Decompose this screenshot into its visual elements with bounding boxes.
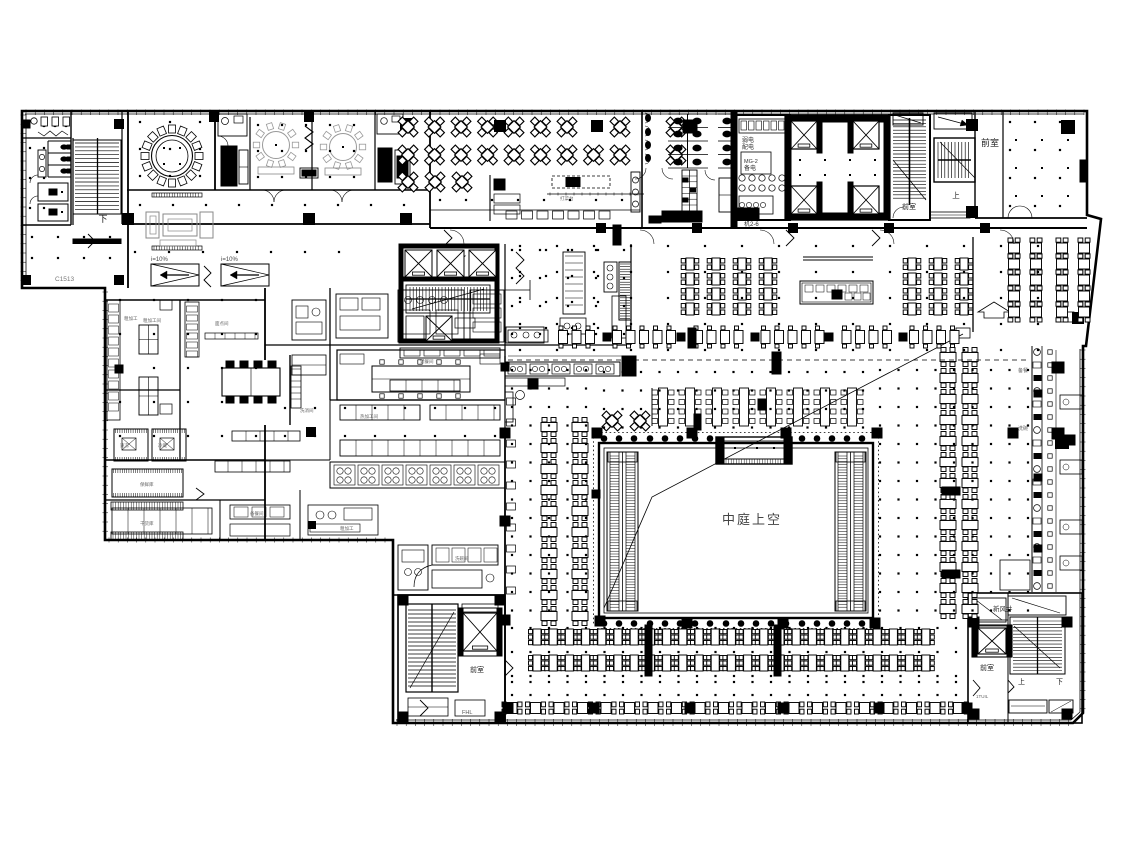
svg-text:C1513: C1513 bbox=[55, 276, 75, 283]
svg-text:粗加工: 粗加工 bbox=[340, 525, 354, 532]
svg-text:前室: 前室 bbox=[902, 202, 916, 211]
svg-text:洗消间: 洗消间 bbox=[300, 407, 314, 414]
svg-text:备餐间: 备餐间 bbox=[250, 510, 264, 517]
svg-text:速冻: 速冻 bbox=[120, 442, 129, 449]
svg-text:面点间: 面点间 bbox=[215, 320, 229, 327]
svg-text:中庭上空: 中庭上空 bbox=[722, 512, 782, 527]
svg-text:下: 下 bbox=[1056, 678, 1063, 686]
svg-text:保鲜库: 保鲜库 bbox=[140, 481, 154, 488]
svg-text:弱电: 弱电 bbox=[742, 136, 754, 144]
svg-text:备餐: 备餐 bbox=[1018, 367, 1028, 374]
svg-text:热加工间: 热加工间 bbox=[360, 413, 378, 420]
svg-text:新风井: 新风井 bbox=[993, 604, 1013, 613]
svg-text:备电: 备电 bbox=[744, 164, 756, 172]
svg-text:冷藏: 冷藏 bbox=[158, 442, 167, 449]
svg-text:干货库: 干货库 bbox=[140, 520, 154, 527]
svg-text:洗碗间: 洗碗间 bbox=[455, 555, 469, 562]
svg-text:FHL: FHL bbox=[462, 710, 472, 716]
svg-text:前室: 前室 bbox=[981, 137, 999, 148]
svg-text:粗加工: 粗加工 bbox=[124, 315, 138, 322]
svg-text:配电: 配电 bbox=[742, 143, 754, 151]
svg-text:上: 上 bbox=[952, 191, 960, 200]
svg-text:机2-6: 机2-6 bbox=[744, 220, 759, 228]
svg-text:试餐间: 试餐间 bbox=[420, 358, 434, 365]
svg-text:洗碗: 洗碗 bbox=[1018, 425, 1028, 432]
svg-text:粗加工间: 粗加工间 bbox=[143, 317, 161, 324]
svg-text:打菜台: 打菜台 bbox=[560, 195, 574, 202]
svg-text:1TUIL: 1TUIL bbox=[976, 694, 989, 699]
svg-text:上: 上 bbox=[1018, 677, 1025, 686]
svg-text:前室: 前室 bbox=[470, 665, 484, 674]
svg-text:下: 下 bbox=[98, 214, 107, 224]
svg-text:前室: 前室 bbox=[980, 663, 994, 672]
svg-text:MG-2: MG-2 bbox=[744, 159, 758, 165]
svg-text:i=10%: i=10% bbox=[221, 257, 239, 263]
svg-text:i=10%: i=10% bbox=[151, 257, 169, 263]
